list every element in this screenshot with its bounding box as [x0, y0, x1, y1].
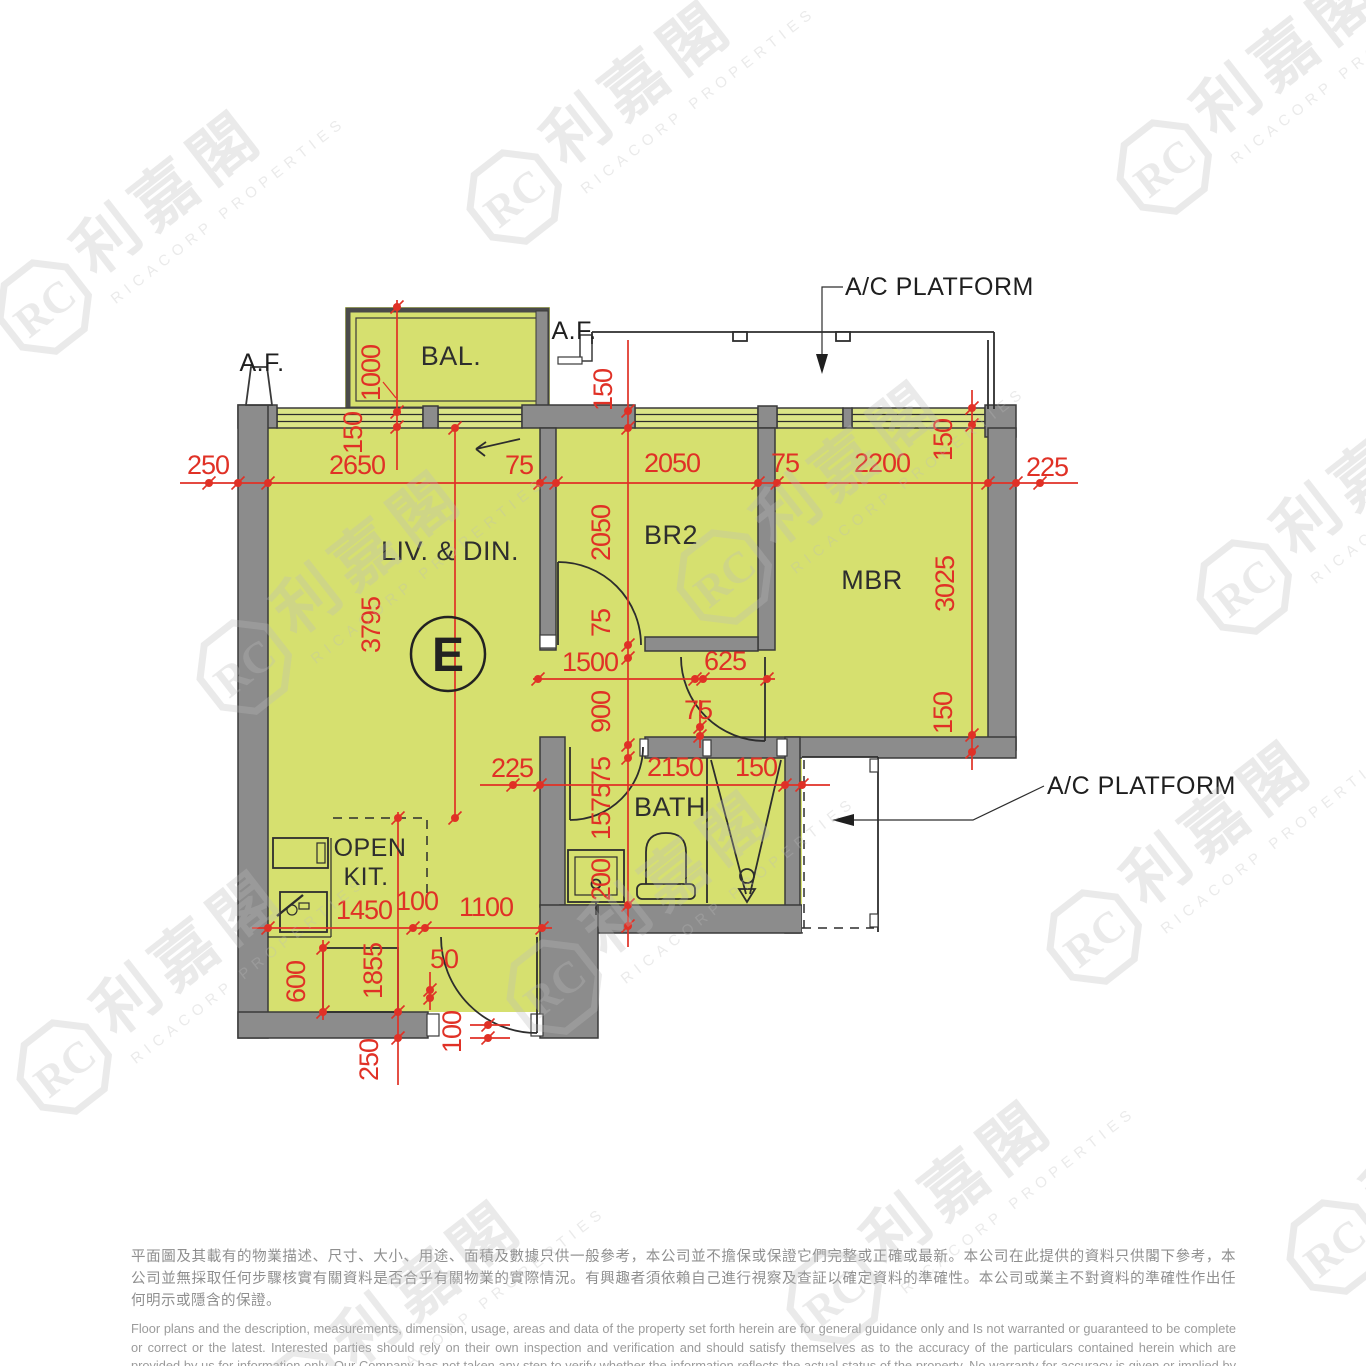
room-label-balcony: BAL. [421, 341, 482, 371]
dim-label: 2050 [644, 448, 700, 478]
dim-label: 200 [586, 859, 616, 901]
dim-label: 75 [586, 609, 616, 637]
floorplan-page: 250 2650 75 2050 75 2200 225 150 1000 15… [0, 0, 1366, 1366]
dim-label: 250 [187, 450, 229, 480]
dim-label: 1100 [459, 892, 513, 922]
dim-label: 100 [396, 886, 438, 916]
ac-platform-label-top: A/C PLATFORM [845, 273, 1034, 301]
ac-platform-top-structure [592, 332, 994, 409]
dim-label: 1855 [358, 943, 388, 999]
dim-label: 100 [437, 1011, 467, 1053]
dim-label: 75 [586, 757, 616, 785]
dim-label: 1575 [586, 784, 616, 840]
dim-label: 150 [588, 369, 618, 411]
dim-label: 600 [281, 961, 311, 1003]
dim-label: 50 [430, 944, 458, 974]
dim-label: 75 [771, 448, 799, 478]
room-label-mbr: MBR [841, 565, 903, 595]
room-label-openkit-1: OPEN [334, 834, 407, 862]
room-label-br2: BR2 [644, 520, 698, 550]
dim-label: 150 [928, 419, 958, 461]
room-label-bath: BATH [634, 792, 706, 822]
dim-label: 2200 [854, 448, 910, 478]
disclaimer: 平面圖及其載有的物業描述、尺寸、大小、用途、面積及數據只供一般參考，本公司並不擔… [131, 1247, 1236, 1366]
dim-label: 75 [505, 450, 533, 480]
dim-label: 1500 [562, 647, 618, 677]
ac-platform-top-leader [816, 287, 843, 374]
dim-label: 3025 [930, 556, 960, 612]
dim-label: 250 [354, 1039, 384, 1081]
dim-label: 1000 [356, 345, 386, 401]
dim-label: 2150 [647, 752, 703, 782]
disclaimer-english: Floor plans and the description, measure… [131, 1320, 1236, 1366]
af-label-left: A.F. [239, 349, 284, 377]
af-label-mid: A.F. [551, 317, 596, 345]
dim-label: 150 [735, 752, 777, 782]
unit-letter: E [432, 629, 464, 682]
dim-label: 900 [586, 691, 616, 733]
dim-label: 1450 [336, 895, 392, 925]
dim-label: 625 [704, 646, 746, 676]
dim-label: 3795 [356, 597, 386, 653]
ac-platform-right-structure [802, 757, 878, 932]
floorplan-drawing: 250 2650 75 2050 75 2200 225 150 1000 15… [0, 0, 1366, 1366]
dim-label: 150 [928, 692, 958, 734]
dim-label: 75 [684, 695, 712, 725]
dim-label: 225 [1026, 452, 1068, 482]
room-label-living: LIV. & DIN. [381, 536, 519, 566]
room-label-openkit-2: KIT. [343, 863, 388, 891]
dim-label: 150 [338, 412, 368, 454]
disclaimer-chinese: 平面圖及其載有的物業描述、尺寸、大小、用途、面積及數據只供一般參考，本公司並不擔… [131, 1247, 1236, 1312]
dim-label: 225 [491, 753, 533, 783]
dim-label: 2050 [586, 505, 616, 561]
ac-platform-label-right: A/C PLATFORM [1047, 772, 1236, 800]
